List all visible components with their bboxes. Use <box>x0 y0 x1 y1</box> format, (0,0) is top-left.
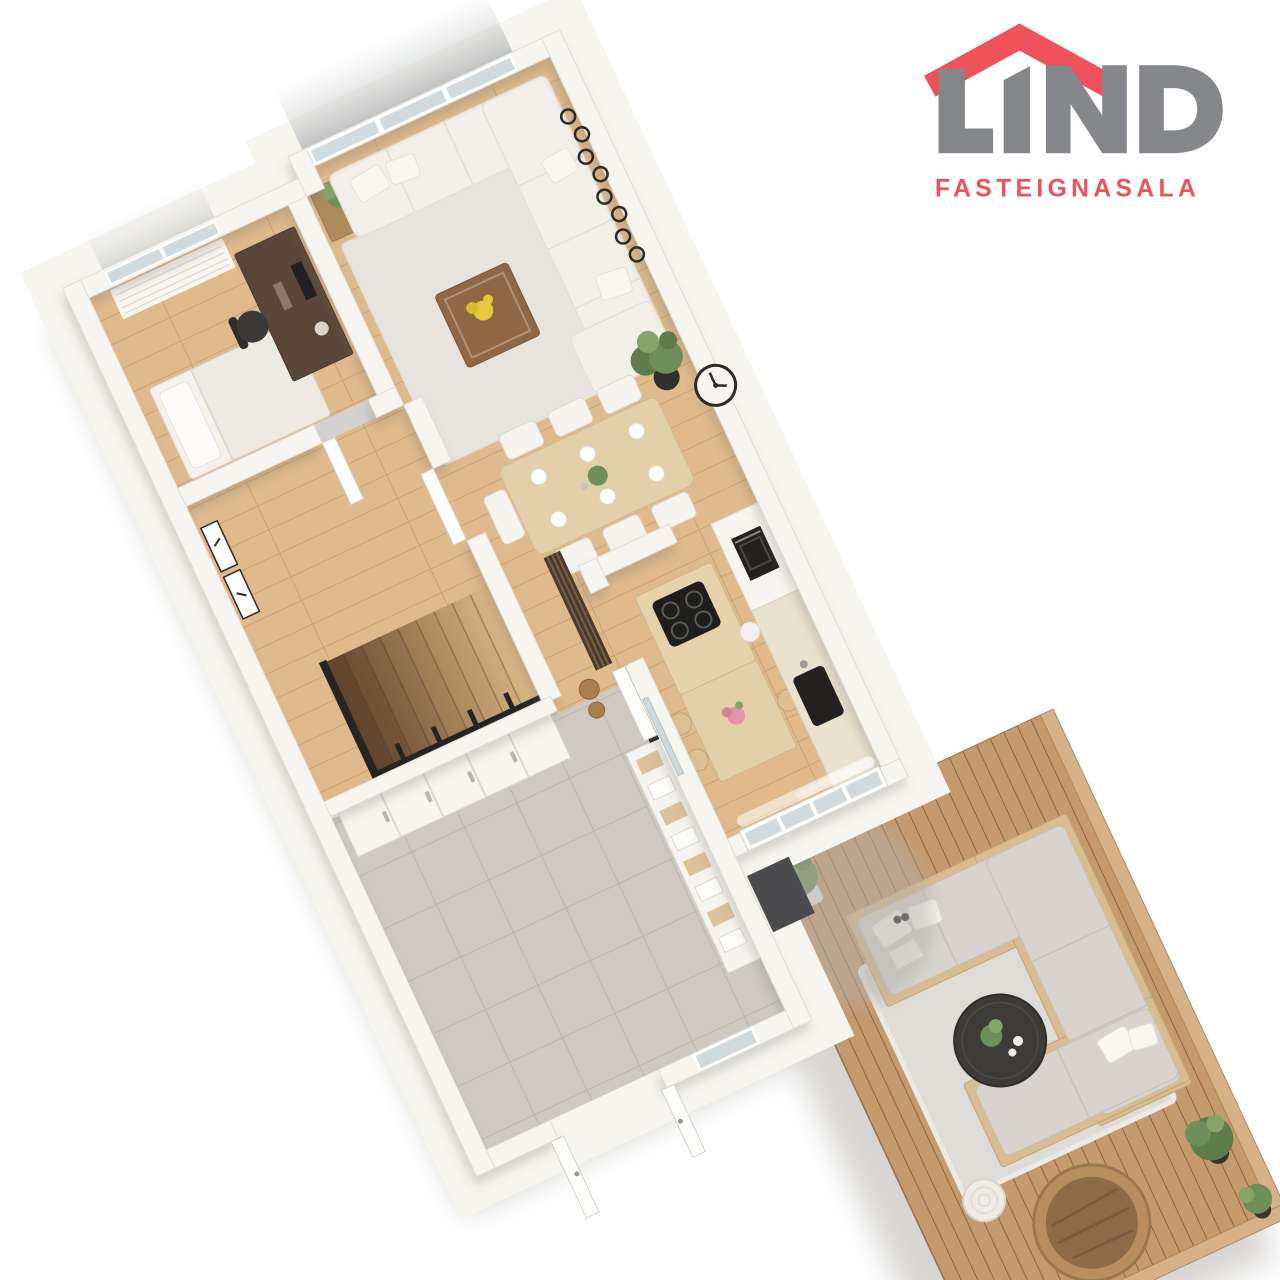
logo-tagline: FASTEIGNASALA <box>935 175 1200 202</box>
logo-letter-i <box>1004 66 1030 153</box>
floor-plan-render: FASTEIGNASALA <box>0 0 1280 1280</box>
